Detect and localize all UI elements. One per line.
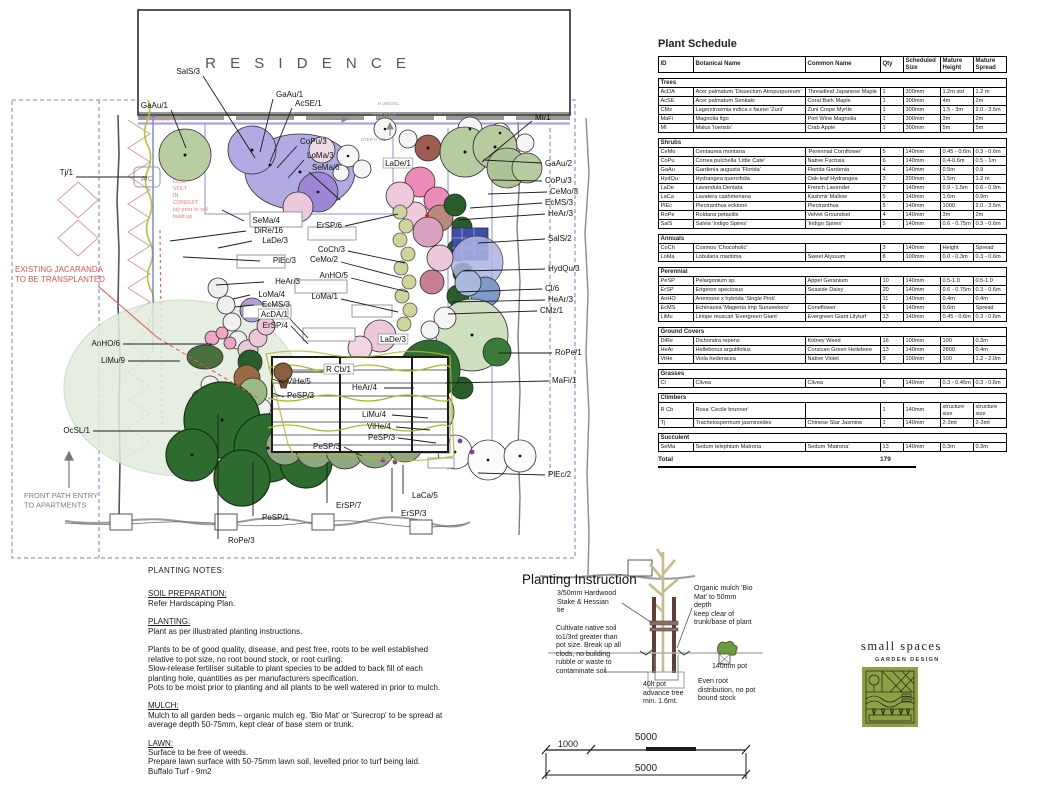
schedule-cell: AcDA [659, 88, 694, 97]
schedule-cell: 20 [881, 286, 904, 295]
notes-heading: SOIL PREPARATION: [148, 589, 520, 598]
schedule-cell: Gardenia augusta 'Florida' [694, 166, 806, 175]
schedule-cell: ErSP [659, 286, 694, 295]
schedule-cell: Oak-leaf Hydrangea [806, 175, 881, 184]
logo-name: small spaces [861, 639, 942, 654]
schedule-cell: Cl [659, 379, 694, 388]
schedule-cell: 1.2 - 2.0m [974, 355, 1007, 364]
section-name: Succulent [659, 434, 1007, 443]
plant-label: LaDe/3 [380, 335, 406, 344]
schedule-cell: 13 [881, 346, 904, 355]
schedule-cell: Appel Geranium [806, 277, 881, 286]
schedule-cell: 13 [881, 313, 904, 322]
schedule-cell: 0.5-1.0 [941, 277, 974, 286]
plant-label: HydQu/3 [548, 264, 580, 273]
schedule-row: R CbRosa 'Cecile brunner'1140mmstructure… [659, 403, 1007, 419]
plant-label: SalS/2 [548, 234, 572, 243]
planting-notes-title: PLANTING NOTES: [148, 566, 520, 575]
notes-line: Slow-release fertiliser suitable to plan… [148, 664, 520, 673]
schedule-cell: 100mm [904, 253, 941, 262]
schedule-row: TjTrachelospermum jasminoidesChinese Sta… [659, 419, 1007, 428]
plan-annotation: TO BE TRANSPLANTED [15, 275, 105, 284]
schedule-cell: 100mm [904, 355, 941, 364]
schedule-row: ErSPErigeron speciosusSeaside Daisy20140… [659, 286, 1007, 295]
schedule-cell: Crab Apple [806, 124, 881, 133]
schedule-cell: 2.0 - 3.5m [974, 106, 1007, 115]
schedule-cell: Sedum 'Matrona' [806, 443, 881, 452]
schedule-cell: 0.5-1.0 [974, 277, 1007, 286]
notes-line: relative to pot size, no root bound stoc… [148, 655, 520, 664]
schedule-cell: 140mm [904, 277, 941, 286]
plant-label: ErSP/6 [317, 221, 343, 230]
schedule-cell: 1.5 - 3m [941, 106, 974, 115]
schedule-section: ShrubsCeMoCentaurea montana'Perennial Co… [658, 138, 1007, 229]
schedule-cell: Seaside Daisy [806, 286, 881, 295]
schedule-row: SeMaSedum telephium MatronaSedum 'Matron… [659, 443, 1007, 452]
schedule-cell: 300mm [904, 97, 941, 106]
schedule-row: CoPuCorrea pulchella 'Little Cate'Native… [659, 157, 1007, 166]
schedule-cell: ViHe [659, 355, 694, 364]
schedule-cell: Malus 'Ioensis' [694, 124, 806, 133]
schedule-cell: 0.3 - 0.6m [974, 379, 1007, 388]
plant-schedule-title: Plant Schedule [658, 38, 1008, 50]
leader-line [170, 231, 246, 241]
plant-label: ErSP/7 [336, 501, 362, 510]
plant-label: CeMo/3 [550, 187, 579, 196]
schedule-cell: 5m [974, 124, 1007, 133]
schedule-cell: Port Wine Magnolia [806, 115, 881, 124]
plant-label: PlEc/2 [548, 470, 572, 479]
schedule-cell: Anemone x hybrida 'Single Pink' [694, 295, 806, 304]
schedule-cell: HydQu [659, 175, 694, 184]
schedule-cell: Kidney Weed [806, 337, 881, 346]
schedule-row: HeArHelleborus argutifoliusCorsican Gree… [659, 346, 1007, 355]
scale-1000-label: 1000 [558, 739, 578, 749]
schedule-cell: Spread [974, 244, 1007, 253]
schedule-cell: 7 [881, 184, 904, 193]
planting-instruction-title: Planting Instruction [522, 572, 637, 587]
plant-label: AcDA/1 [261, 310, 289, 319]
schedule-cell: RoPe [659, 211, 694, 220]
plant-schedule: Plant Schedule IDBotanical NameCommon Na… [658, 38, 1008, 468]
schedule-header: IDBotanical NameCommon NameQtyScheduled … [658, 56, 1007, 73]
schedule-cell: 2800 [941, 346, 974, 355]
schedule-cell [806, 244, 881, 253]
leader-line [218, 241, 252, 248]
schedule-cell: Viola hederacea [694, 355, 806, 364]
plant-label: HeAr/4 [352, 383, 377, 392]
schedule-cell: 1 [881, 88, 904, 97]
schedule-cell: AnHO [659, 295, 694, 304]
section-name: Ground Covers [659, 328, 1007, 337]
schedule-cell: Native Violet [806, 355, 881, 364]
plant-label: HeAr/3 [548, 295, 573, 304]
schedule-cell: 4 [881, 166, 904, 175]
schedule-cell: 140mm [904, 419, 941, 428]
schedule-cell: structure size [974, 403, 1007, 419]
schedule-cell: 0.3 - 0.6m [974, 220, 1007, 229]
schedule-section: Ground CoversDiReDichondra repensKidney … [658, 327, 1007, 364]
schedule-cell: 1.2m std [941, 88, 974, 97]
schedule-cell: Cosmos 'Chocoholic' [694, 244, 806, 253]
leader-line [348, 251, 405, 263]
schedule-cell: R Cb [659, 403, 694, 419]
schedule-cell: 2-3mt [941, 419, 974, 428]
notes-line: Plants to be of good quality, disease, a… [148, 645, 520, 654]
plant-label: GaAu/1 [276, 90, 304, 99]
schedule-cell: Rosa 'Cecile brunner' [694, 403, 806, 419]
schedule-cell: 0.4-0.6m [941, 157, 974, 166]
leader-line [351, 278, 408, 292]
schedule-cell: DiRe [659, 337, 694, 346]
plant-label: LiMu/4 [362, 410, 387, 419]
column-header: Botanical Name [694, 57, 806, 73]
lawn-grid [266, 351, 454, 461]
schedule-row: GaAuGardenia augusta 'Florida'Florida Ga… [659, 166, 1007, 175]
plant-label: LoMa/4 [258, 290, 285, 299]
schedule-cell: 1 [881, 403, 904, 419]
schedule-cell: Hydrangea quercifolia [694, 175, 806, 184]
schedule-cell [806, 295, 881, 304]
schedule-total-row: Total 179 [658, 456, 916, 468]
instruction-label: Cultivate native soil to1/3rd greater th… [556, 625, 621, 677]
schedule-cell: 'Indigo Spires' [806, 220, 881, 229]
plant-label: PeSP/3 [368, 433, 396, 442]
schedule-cell: 1 [881, 124, 904, 133]
schedule-cell: 0.4m [941, 295, 974, 304]
schedule-cell: 140mm [904, 313, 941, 322]
schedule-cell: 1 [881, 419, 904, 428]
plant-label: CoCh/3 [318, 245, 346, 254]
schedule-cell: Velvet Groundsel [806, 211, 881, 220]
schedule-cell: Height [941, 244, 974, 253]
notes-line: planting hole, quantities as per manufac… [148, 674, 520, 683]
plant-label: AnHO/6 [92, 339, 121, 348]
schedule-cell: PeSP [659, 277, 694, 286]
schedule-row: DiReDichondra repensKidney Weed16100mm10… [659, 337, 1007, 346]
notes-line: Refer Hardscaping Plan. [148, 599, 520, 608]
schedule-cell: 1.2 m [974, 88, 1007, 97]
notes-line: Prepare lawn surface with 50-75mm lawn s… [148, 757, 520, 766]
leader-line [341, 262, 402, 278]
plant-label: LaDe/3 [262, 236, 288, 245]
landscape-plan-sheet: R E S I D E N C EA/Cconnect 240VLOWVOLTI… [0, 0, 1038, 799]
schedule-cell: GaAu [659, 166, 694, 175]
schedule-cell: 140mm [904, 193, 941, 202]
schedule-cell: LaCa [659, 193, 694, 202]
schedule-cell: 0.3 - 0.6m [974, 253, 1007, 262]
schedule-cell: SeMa [659, 443, 694, 452]
schedule-cell: Coral Bark Maple [806, 97, 881, 106]
schedule-cell: 140mm [904, 220, 941, 229]
schedule-cell: 140mm [904, 244, 941, 253]
schedule-cell: 2m [974, 115, 1007, 124]
plant-label: RoPe/1 [555, 348, 582, 357]
schedule-row: LaDeLavandula DentataFrench Lavender7140… [659, 184, 1007, 193]
schedule-cell: Correa pulchella 'Little Cate' [694, 157, 806, 166]
schedule-cell: LiMu [659, 313, 694, 322]
schedule-cell: Echinacea 'Magenta Imp Sunseekers' [694, 304, 806, 313]
scale-5000-top-label: 5000 [635, 732, 658, 743]
schedule-cell: 300mm [904, 106, 941, 115]
schedule-cell: Threadleaf Japanese Maple [806, 88, 881, 97]
instruction-label: Even root distribution, no pot bound sto… [698, 678, 755, 704]
schedule-cell: Sweet Alyssum [806, 253, 881, 262]
section-name: Perennial [659, 268, 1007, 277]
schedule-cell: EcMS [659, 304, 694, 313]
schedule-cell: 2.0 - 3.5m [974, 202, 1007, 211]
schedule-cell: 1.2 m [974, 175, 1007, 184]
schedule-cell: Acer palmatum 'Dissectum Atropurpureum' [694, 88, 806, 97]
plant-label: PeSP/3 [313, 442, 341, 451]
notes-line: Mulch to all garden beds – organic mulch… [148, 711, 520, 720]
plant-label: PeSP/1 [262, 513, 290, 522]
schedule-cell: 140mm [904, 443, 941, 452]
leader-line [345, 214, 398, 226]
schedule-cell: 0.3 - 0.6m [974, 148, 1007, 157]
column-header: Mature Spread [974, 57, 1007, 73]
schedule-cell: 0.6 - 0.75m [941, 286, 974, 295]
schedule-cell: Salvia 'Indigo Spires' [694, 220, 806, 229]
schedule-cell: 3 [881, 244, 904, 253]
schedule-cell: 140mm [904, 403, 941, 419]
schedule-cell: 5 [881, 193, 904, 202]
schedule-cell: 1 [881, 106, 904, 115]
schedule-cell: Florida Gardenia [806, 166, 881, 175]
schedule-cell: 100mm [904, 337, 941, 346]
schedule-cell [806, 403, 881, 419]
schedule-cell: Dichondra repens [694, 337, 806, 346]
schedule-cell: 0.5m [941, 166, 974, 175]
schedule-row: AnHOAnemone x hybrida 'Single Pink'11140… [659, 295, 1007, 304]
schedule-cell: 2m [974, 97, 1007, 106]
schedule-cell: 1 [881, 115, 904, 124]
schedule-cell: 5 [881, 148, 904, 157]
plant-label: MI/1 [535, 113, 551, 122]
schedule-cell: Clivea [694, 379, 806, 388]
leader-line [222, 210, 244, 221]
notes-line: Plant as per illustrated planting instru… [148, 627, 520, 636]
schedule-cell: 300mm [904, 124, 941, 133]
plan-annotation: lay prior to soil [173, 207, 208, 213]
plant-label: HeAr/3 [275, 277, 300, 286]
schedule-row: AcDAAcer palmatum 'Dissectum Atropurpure… [659, 88, 1007, 97]
schedule-cell: 3m [941, 115, 974, 124]
schedule-cell: 0.5 - 1m [974, 157, 1007, 166]
schedule-section: ClimbersR CbRosa 'Cecile brunner'1140mms… [658, 393, 1007, 428]
section-name: Trees [659, 79, 1007, 88]
schedule-cell: French Lavender [806, 184, 881, 193]
schedule-cell: MaFi [659, 115, 694, 124]
notes-line: Buffalo Turf - 9m2 [148, 767, 520, 776]
schedule-cell: Zuni Crepe Myrtle [806, 106, 881, 115]
schedule-section: PerennialPeSPPelargonium sp.Appel Gerani… [658, 267, 1007, 322]
leader-line [470, 203, 542, 208]
schedule-cell: CMz [659, 106, 694, 115]
schedule-row: RoPeRoldana petasitisVelvet Groundsel414… [659, 211, 1007, 220]
schedule-cell: 140mm [904, 157, 941, 166]
schedule-cell: 140mm [904, 184, 941, 193]
plan-annotation: FRONT PATH ENTRY [24, 491, 98, 500]
schedule-section: TreesAcDAAcer palmatum 'Dissectum Atropu… [658, 78, 1007, 133]
total-label: Total [658, 456, 673, 463]
schedule-cell: structure size [941, 403, 974, 419]
plant-label: SeMa/4 [252, 216, 280, 225]
plan-annotation: IN [173, 193, 179, 199]
schedule-cell: 6 [881, 379, 904, 388]
schedule-row: ClCliveaClivea6140mm0.3 - 0.45m0.3 - 0.6… [659, 379, 1007, 388]
schedule-cell: Roldana petasitis [694, 211, 806, 220]
schedule-row: LoMaLobularia maritimaSweet Alyssum8100m… [659, 253, 1007, 262]
plant-label: OcSL/1 [63, 426, 90, 435]
schedule-section: SucculentSeMaSedum telephium MatronaSedu… [658, 433, 1007, 452]
schedule-cell: 6 [881, 157, 904, 166]
instruction-label: 140mm pot [712, 663, 747, 672]
plant-label: CoPu/3 [300, 137, 327, 146]
plant-label: RoPe/3 [228, 536, 255, 545]
plant-label: ViHe/5 [287, 377, 311, 386]
schedule-cell: Kashmir Mallow [806, 193, 881, 202]
schedule-cell: 0.4m [974, 295, 1007, 304]
schedule-row: ViHeViola hederaceaNative Violet9100mm10… [659, 355, 1007, 364]
plant-label: ErSP/3 [401, 509, 427, 518]
column-header: Mature Height [941, 57, 974, 73]
plant-label: CeMo/2 [310, 255, 339, 264]
plant-label: EcMS/3 [262, 300, 291, 309]
schedule-cell: Tj [659, 419, 694, 428]
schedule-cell: 3 [881, 175, 904, 184]
schedule-cell: 300mm [904, 115, 941, 124]
plant-label: LoMa/3 [307, 151, 334, 160]
plant-label: CoPu/3 [545, 176, 572, 185]
schedule-cell: 1.6m [941, 193, 974, 202]
plant-label: DiRe/16 [254, 226, 283, 235]
schedule-cell: Plectranthus ecklonii [694, 202, 806, 211]
schedule-row: CoChCosmos 'Chocoholic'3140mmHeightSprea… [659, 244, 1007, 253]
schedule-cell: 5 [881, 220, 904, 229]
schedule-cell: CoPu [659, 157, 694, 166]
schedule-row: PeSPPelargonium sp.Appel Geranium10140mm… [659, 277, 1007, 286]
schedule-cell: 0.6 - 0.9m [974, 184, 1007, 193]
schedule-row: HydQuHydrangea quercifoliaOak-leaf Hydra… [659, 175, 1007, 184]
schedule-cell: 0.0 - 0.3m [941, 253, 974, 262]
schedule-cell: Lagerstroemia indica x fauriei 'Zuni' [694, 106, 806, 115]
schedule-cell: 0.9 - 1.5m [941, 184, 974, 193]
schedule-cell: 2m [974, 211, 1007, 220]
schedule-cell: 140mm [904, 346, 941, 355]
schedule-row: SalSSalvia 'Indigo Spires''Indigo Spires… [659, 220, 1007, 229]
plan-annotation: H 385/3SL [378, 101, 400, 106]
instruction-label: 40lt pot advance tree min. 1.6mt. [643, 681, 683, 707]
schedule-cell: 4 [881, 211, 904, 220]
plant-label: ViHe/4 [367, 422, 391, 431]
schedule-row: EcMSEchinacea 'Magenta Imp Sunseekers'Co… [659, 304, 1007, 313]
notes-line: Pots to be moist prior to planting and a… [148, 683, 520, 692]
plant-label: PlEc/3 [273, 256, 297, 265]
schedule-cell: 6 [881, 304, 904, 313]
schedule-cell: 140mm [904, 202, 941, 211]
plan-annotation: EXISTING JACARANDA [15, 265, 104, 274]
schedule-cell: Clivea [806, 379, 881, 388]
plan-annotation: build up [173, 214, 192, 220]
schedule-row: MaFiMagnolia figoPort Wine Magnolia1300m… [659, 115, 1007, 124]
scale-5000-bottom-label: 5000 [635, 763, 658, 774]
schedule-cell: 1.5m [941, 175, 974, 184]
schedule-cell: MI [659, 124, 694, 133]
section-name: Shrubs [659, 139, 1007, 148]
schedule-cell: 13 [881, 443, 904, 452]
plant-label: LaDe/1 [385, 159, 411, 168]
schedule-cell: 3m [941, 211, 974, 220]
instruction-label: Organic mulch 'Bio Mat' to 50mm depth ke… [694, 585, 753, 628]
schedule-cell: 'Perennial Cornflower' [806, 148, 881, 157]
logo-mark [862, 667, 918, 727]
logo-tagline: GARDEN DESIGN [875, 657, 940, 663]
schedule-cell: 140mm [904, 379, 941, 388]
column-header: ID [659, 57, 694, 73]
schedule-cell: 0.9m [974, 193, 1007, 202]
leader-line [233, 295, 250, 299]
plan-annotation: STEP H 175 [361, 137, 386, 142]
schedule-row: PlEcPlectranthus eckloniiPlectranthus514… [659, 202, 1007, 211]
plant-label: GaAu/2 [545, 159, 573, 168]
schedule-cell: Lavatera cashmeriana [694, 193, 806, 202]
schedule-cell: HeAr [659, 346, 694, 355]
schedule-cell: CeMo [659, 148, 694, 157]
schedule-cell: 0.3m [974, 337, 1007, 346]
schedule-cell: 140mm [904, 166, 941, 175]
schedule-cell: Erigeron speciosus [694, 286, 806, 295]
schedule-section: AnnualsCoChCosmos 'Chocoholic'3140mmHeig… [658, 234, 1007, 262]
plant-label: Cl/6 [545, 284, 560, 293]
schedule-cell: LaDe [659, 184, 694, 193]
planting-notes: PLANTING NOTES: SOIL PREPARATION:Refer H… [148, 566, 520, 776]
notes-heading: LAWN: [148, 739, 520, 748]
schedule-cell: PlEc [659, 202, 694, 211]
schedule-cell: 8 [881, 253, 904, 262]
plant-label: Tj/1 [60, 168, 74, 177]
schedule-cell: Coneflower [806, 304, 881, 313]
schedule-cell: Helleborus argutifolius [694, 346, 806, 355]
schedule-cell: 1000 [941, 202, 974, 211]
schedule-cell: Native Fuchsia [806, 157, 881, 166]
plant-label: ErSP/4 [263, 321, 289, 330]
plant-label: LiMu/9 [101, 356, 126, 365]
schedule-cell: Plectranthus [806, 202, 881, 211]
schedule-cell: 140mm [904, 211, 941, 220]
schedule-cell: 0.3 - 0.6m [974, 286, 1007, 295]
schedule-row: LaCaLavatera cashmerianaKashmir Mallow51… [659, 193, 1007, 202]
schedule-cell: 1 [881, 97, 904, 106]
schedule-cell: 5m [941, 124, 974, 133]
schedule-cell: Corsican Green Hellebore [806, 346, 881, 355]
schedule-cell: SalS [659, 220, 694, 229]
schedule-row: CMzLagerstroemia indica x fauriei 'Zuni'… [659, 106, 1007, 115]
schedule-cell: 5 [881, 202, 904, 211]
schedule-cell: Magnolia figo [694, 115, 806, 124]
schedule-cell: 140mm [904, 304, 941, 313]
plant-label: GaAu/1 [141, 101, 169, 110]
schedule-cell: 0.6m [941, 304, 974, 313]
schedule-cell: 0.3 - 0.45m [941, 379, 974, 388]
notes-line: average depth 50-75mm, kept clear of bas… [148, 720, 520, 729]
schedule-cell: 0.45 - 0.6m [941, 148, 974, 157]
schedule-cell: 2-3mt [974, 419, 1007, 428]
plant-label: HeAr/3 [548, 209, 573, 218]
notes-heading: PLANTING: [148, 617, 520, 626]
schedule-cell: Centaurea montana [694, 148, 806, 157]
section-name: Annuals [659, 235, 1007, 244]
